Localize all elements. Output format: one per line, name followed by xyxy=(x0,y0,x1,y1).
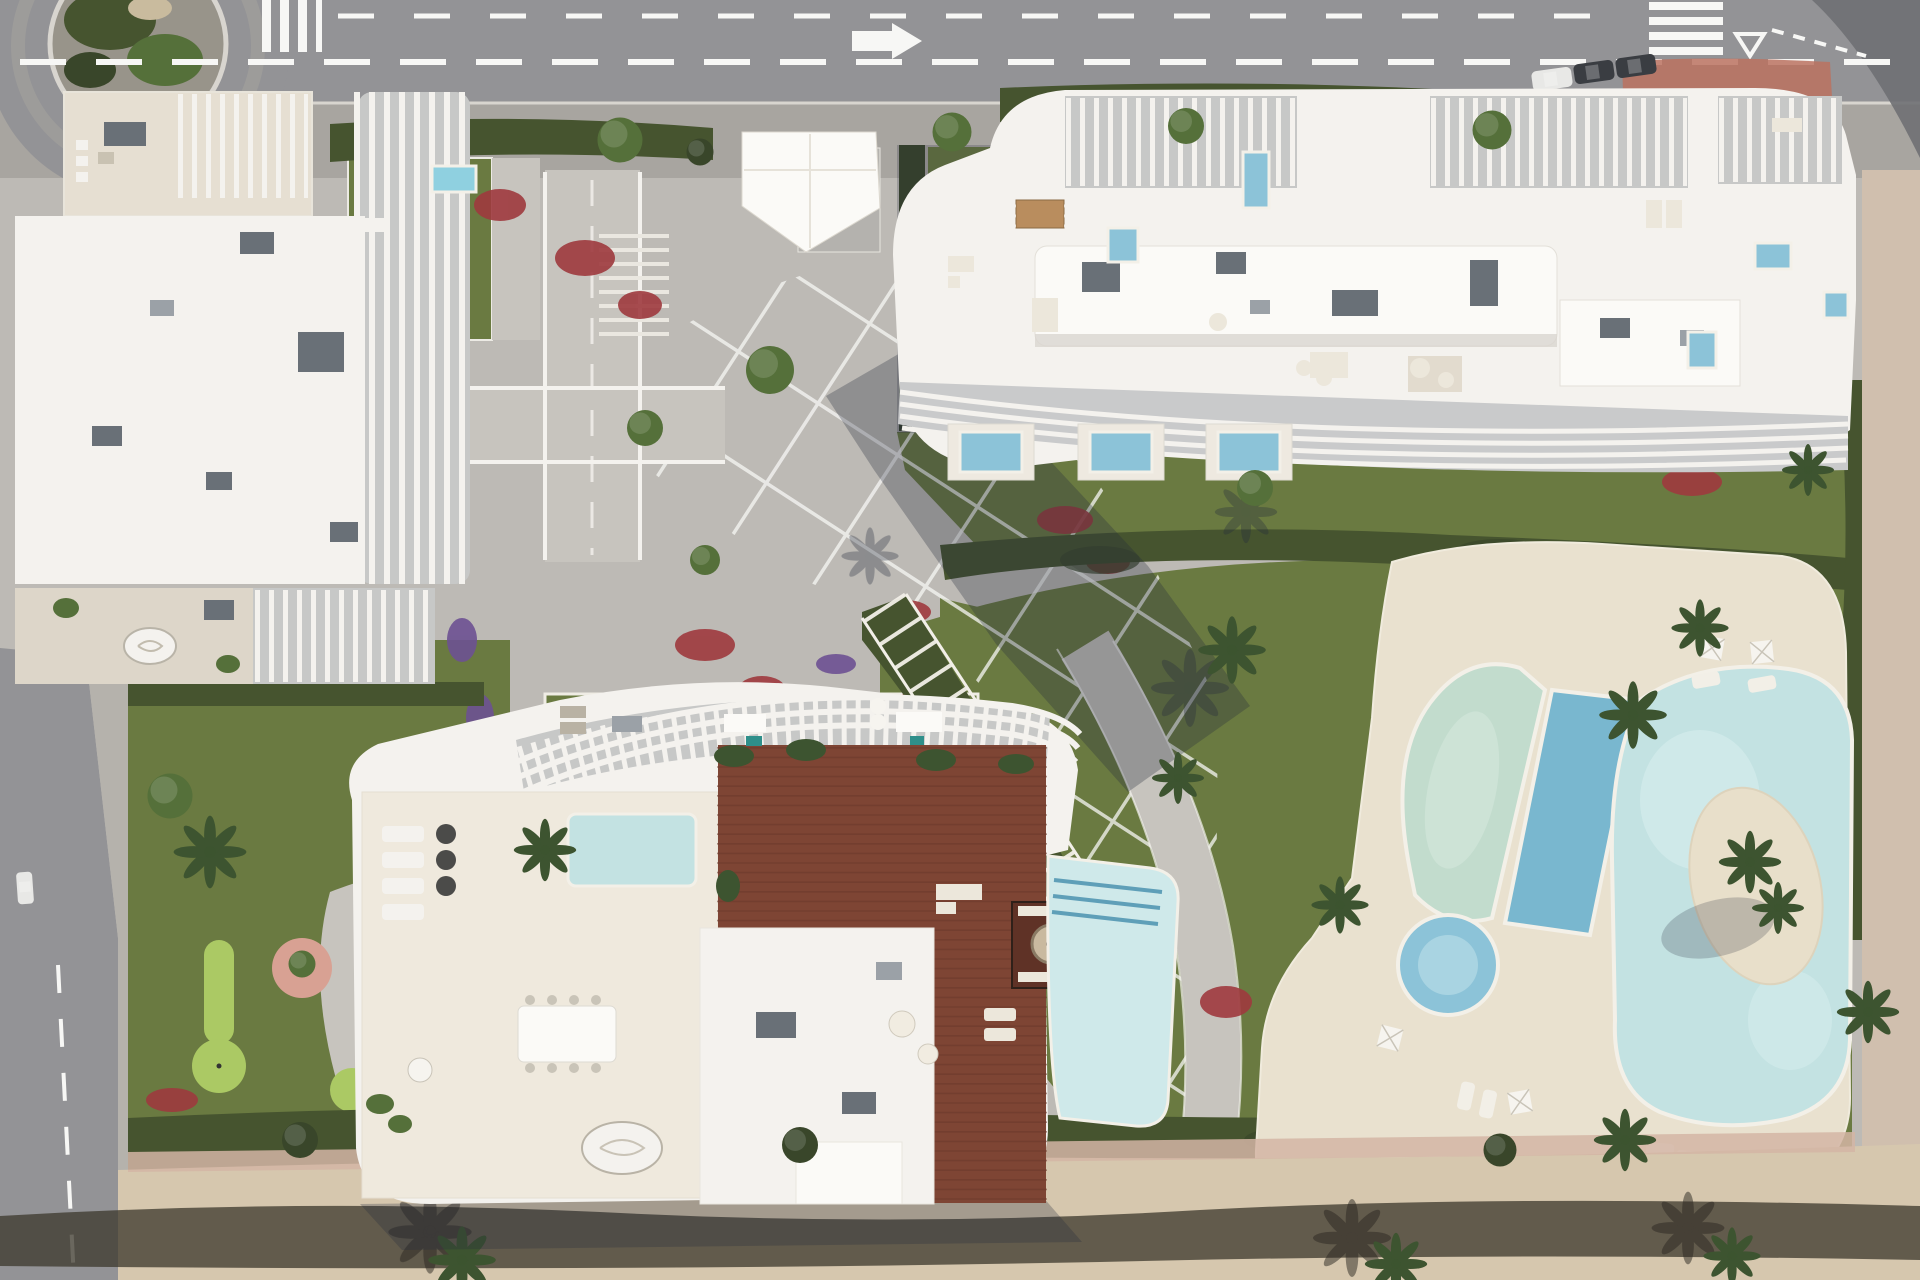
spiral-sculpture xyxy=(582,1122,662,1174)
site-plan-svg xyxy=(0,0,1920,1280)
roof-path xyxy=(492,158,540,340)
right-sidewalk xyxy=(1862,170,1920,1280)
green-roof-pool xyxy=(432,166,476,192)
building-b-ground-pools xyxy=(948,424,1292,480)
building-a xyxy=(15,92,474,684)
aerial-site-render xyxy=(0,0,1920,1280)
hedge-west-garden xyxy=(128,682,484,706)
building-a-lower-terrace xyxy=(15,588,435,684)
sculpture xyxy=(124,628,176,664)
building-c-terrace-pool xyxy=(568,814,696,886)
building-a-main-roof xyxy=(15,216,365,584)
building-b xyxy=(893,88,1856,480)
